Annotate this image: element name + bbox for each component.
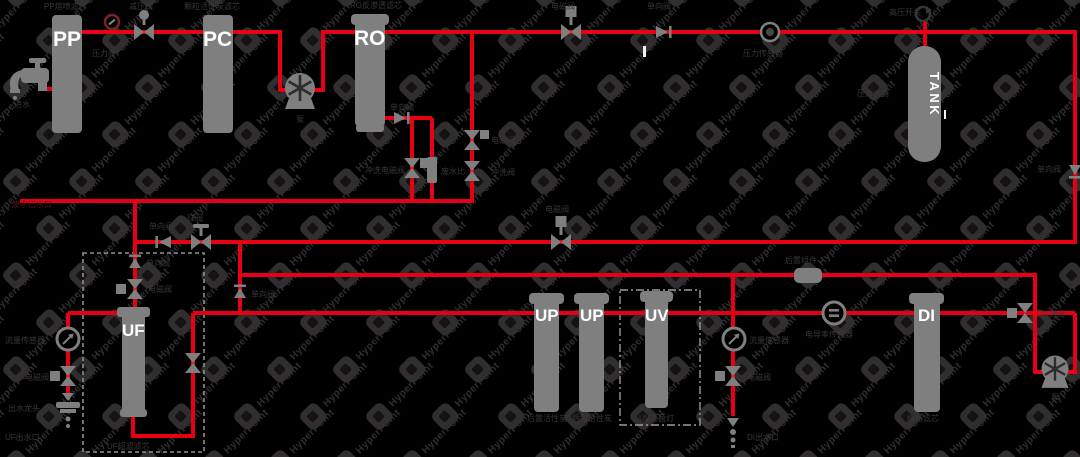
flow-sensor-left-label: 流量传感器 <box>5 335 45 345</box>
uf-outlet-label: UF出水口 <box>5 432 40 442</box>
pump2-label: 泵 <box>1051 393 1059 402</box>
return-check-label: 单向阀 <box>149 221 173 231</box>
reducing-valve-label: 减压阀 <box>129 1 153 11</box>
pressure-sensor-icon <box>761 23 779 41</box>
flow-sensor-right-icon <box>723 328 745 350</box>
tds-sensor-label: 电导率传感器 <box>805 329 853 339</box>
ro-caption: RO反渗透滤芯 <box>350 0 402 10</box>
three-way-valve-label: 三通阀 <box>1041 309 1065 319</box>
right-solenoid-label: 电磁阀 <box>747 372 771 382</box>
flow-sensor-left-icon <box>57 328 79 350</box>
flush-valve-icon <box>464 161 480 181</box>
top-check-label: 单向阀 <box>647 1 671 11</box>
pp-label: PP <box>53 28 81 51</box>
flow-sensor-right-label: 流量传感器 <box>749 335 789 345</box>
uf-return-valve-icon <box>185 353 201 373</box>
left-tap-label: 出水龙头 <box>8 403 40 413</box>
up2-label: UP <box>580 306 604 325</box>
return-solenoid-icon <box>551 216 571 250</box>
pressure-gauge-label: 压力表 <box>92 48 116 58</box>
delivery-pump-icon <box>1042 356 1069 388</box>
left-solenoid-icon <box>50 366 76 386</box>
left-tap-icon <box>56 393 80 428</box>
post-module-icon <box>794 268 822 283</box>
solenoid-a-label: 电磁阀 <box>491 135 515 145</box>
inlet-label: 进水 <box>14 99 30 109</box>
flush-valve-label: 冲洗阀 <box>491 167 515 177</box>
uv-label: UV <box>645 306 669 325</box>
process-diagram: PP PC RO TANK UF UP UP UV DI 进水 PP熔喷滤芯 减… <box>0 0 1080 457</box>
ro-label: RO <box>354 27 386 50</box>
pipe-pump2-out <box>1068 313 1075 372</box>
uf-label: UF <box>122 321 145 340</box>
di-caption: 树脂滤芯 <box>907 413 939 423</box>
top-solenoid-icon <box>561 6 581 40</box>
pc-caption: 颗粒活性炭滤芯 <box>184 1 240 11</box>
uf-solenoid-label: 电磁阀 <box>148 284 172 294</box>
ro-check-label: 单向阀 <box>390 102 414 112</box>
top-check-valve-icon <box>656 26 672 38</box>
uv-caption: UV杀菌灯 <box>639 413 674 423</box>
uf-caption: UF超滤滤芯 <box>107 441 150 451</box>
tank-caption: 压力水桶 <box>857 88 889 98</box>
up1-caption: 后置活性炭 <box>527 413 567 423</box>
pump1-label: 泵 <box>296 115 304 124</box>
inlet-faucet-icon <box>10 58 49 100</box>
ball-valve-icon <box>191 224 211 250</box>
uf-check-label: 单向阀 <box>146 258 170 268</box>
di-outlet-label: DI出水口 <box>747 432 779 442</box>
return-solenoid-label: 电磁阀 <box>545 204 569 214</box>
uf-solenoid-icon <box>116 279 143 299</box>
tds-sensor-icon <box>823 302 845 324</box>
di-label: DI <box>918 306 935 325</box>
loop-check-label: 单向阀 <box>251 289 275 299</box>
pp-caption: PP熔喷滤芯 <box>44 1 87 11</box>
right-check-label: 单向阀 <box>1037 164 1061 174</box>
up2-caption: 后置活性炭 <box>572 413 612 423</box>
right-check-valve-icon <box>1069 165 1080 179</box>
flush-solenoid-label: 冲洗电磁阀 <box>365 165 405 175</box>
solenoid-a-icon <box>464 130 489 150</box>
ball-valve-label: 球阀 <box>187 213 203 223</box>
flush-solenoid-icon <box>404 158 430 178</box>
top-solenoid-label: 电磁阀 <box>551 1 575 11</box>
hp-switch-label: 高压开关 <box>889 7 921 17</box>
stray-mark <box>643 46 646 57</box>
waste-ratio-restrictor <box>427 157 437 183</box>
waste-ratio-label: 废水比 <box>441 166 465 176</box>
pipe-uf-out <box>68 313 123 394</box>
loop-check-valve-icon <box>234 285 246 299</box>
diagram-stage: HyperPointHyperPointHyperPointHyperPoint… <box>0 0 1080 457</box>
reducing-valve-icon <box>134 10 154 40</box>
tick-mark <box>944 110 946 119</box>
ro-check-valve-icon <box>394 112 410 124</box>
post-module-label: 后置组件 <box>785 255 817 265</box>
up1-label: UP <box>535 306 559 325</box>
pressure-sensor-label: 压力传感器 <box>743 48 783 58</box>
uf-check-valve-icon <box>129 255 141 269</box>
right-solenoid-icon <box>715 366 741 386</box>
di-tap-icon <box>727 418 739 448</box>
booster-pump-icon <box>285 73 315 109</box>
pc-label: PC <box>203 28 232 51</box>
return-check-valve-icon <box>155 236 171 248</box>
left-solenoid-label: 电磁阀 <box>25 372 49 382</box>
tank-label: TANK <box>927 72 942 117</box>
pressure-gauge-icon <box>105 15 119 29</box>
waste-outlet-label: 废水出水口 <box>12 199 52 209</box>
